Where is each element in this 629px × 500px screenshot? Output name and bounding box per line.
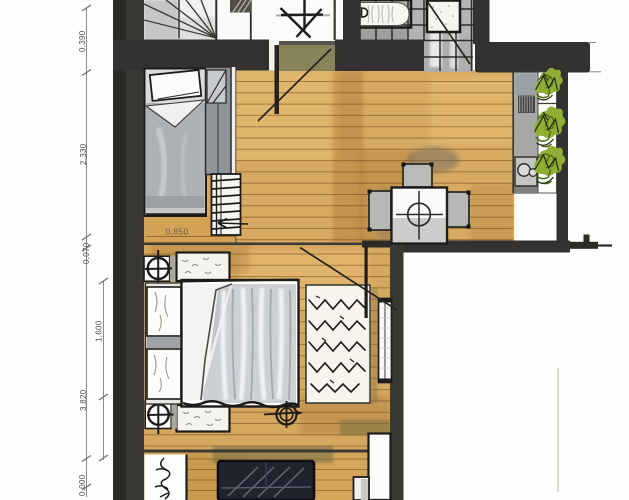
- svg-text:1,600: 1,600: [95, 320, 104, 342]
- svg-text:3,820: 3,820: [79, 389, 88, 411]
- svg-text:0,000: 0,000: [78, 474, 87, 496]
- svg-text:0,070: 0,070: [82, 242, 91, 264]
- svg-text:2,330: 2,330: [79, 143, 88, 165]
- svg-text:0,390: 0,390: [78, 30, 87, 52]
- svg-text:0,850: 0,850: [165, 227, 188, 237]
